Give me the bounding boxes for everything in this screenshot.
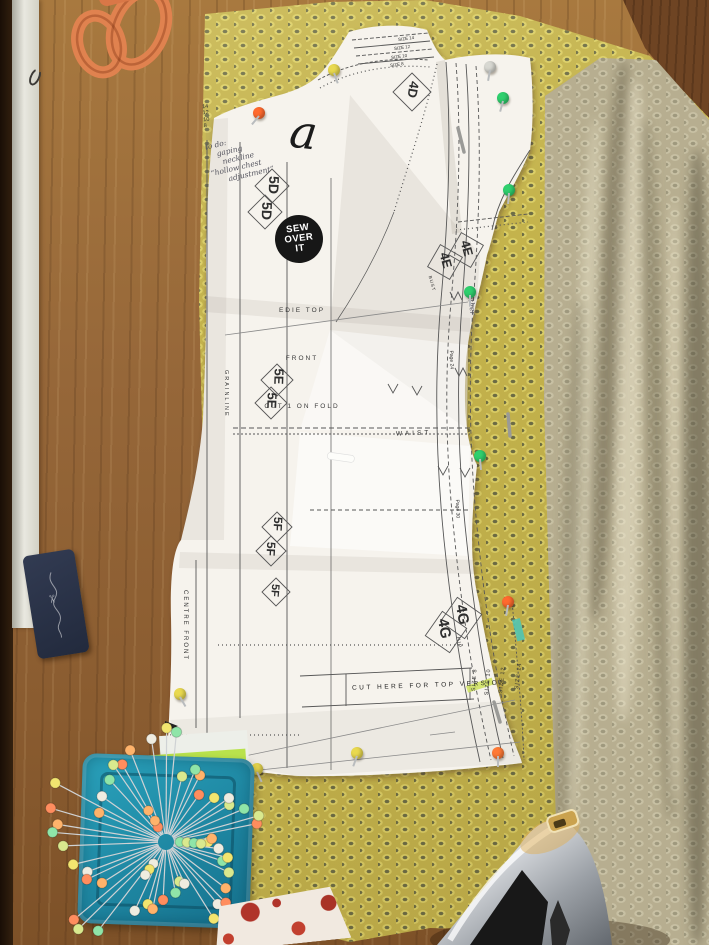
pin[interactable]: [174, 688, 186, 700]
baseboard-strip: [12, 0, 39, 628]
pin[interactable]: [253, 107, 265, 119]
pin-tray[interactable]: [77, 753, 255, 929]
match-point-5f: 5F: [270, 517, 285, 532]
pin[interactable]: [464, 286, 476, 298]
pin[interactable]: [502, 596, 514, 608]
pin[interactable]: [497, 92, 509, 104]
match-point-5e: 5E: [270, 368, 285, 384]
pin[interactable]: [474, 450, 486, 462]
piece-info-block: EDIE TOP FRONT CUT 1 ON FOLD: [258, 266, 346, 448]
centre-front-label: CENTRE FRONT: [181, 590, 188, 661]
pin[interactable]: [492, 747, 504, 759]
pin[interactable]: [503, 184, 515, 196]
match-point-4d: 4D: [404, 80, 422, 99]
match-point-5e: 5E: [263, 392, 278, 408]
page-ref-30: Page 30: [453, 499, 459, 518]
match-point-5f: 5F: [263, 542, 278, 557]
pin[interactable]: [484, 61, 496, 73]
match-point-5d: 5D: [259, 202, 276, 220]
page-ref-24: Page 24: [447, 350, 453, 369]
match-point-5d: 5D: [266, 176, 283, 194]
pin[interactable]: [351, 747, 363, 759]
match-point-4g: 4G: [434, 617, 454, 640]
hip-label: HIP: [454, 637, 462, 649]
grainline-label: GRAINLINE: [223, 370, 229, 418]
photo-sewing-layout: 1412108 to do: gaping neckline “hollow c…: [0, 0, 709, 945]
pin[interactable]: [328, 64, 340, 76]
match-point-5f: 5F: [268, 583, 282, 597]
match-point-4g: 4G: [452, 603, 472, 626]
waist-label: WAIST: [396, 429, 432, 438]
